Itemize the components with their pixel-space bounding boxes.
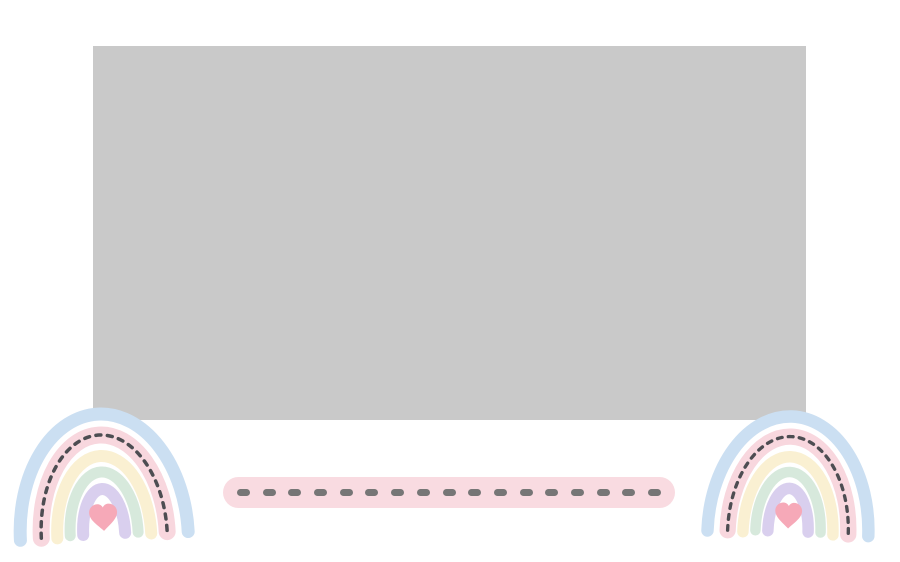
divider-dash xyxy=(391,489,404,496)
divider-dash xyxy=(468,489,481,496)
divider-dash xyxy=(597,489,610,496)
divider-dash xyxy=(340,489,353,496)
divider-dash xyxy=(545,489,558,496)
divider-dash xyxy=(648,489,661,496)
image-placeholder xyxy=(93,46,806,420)
rainbow-illustration-left xyxy=(2,393,200,553)
divider-dash xyxy=(520,489,533,496)
heart-icon xyxy=(775,502,803,529)
rainbow-graphic xyxy=(2,393,200,553)
divider-dash xyxy=(288,489,301,496)
divider-dash xyxy=(314,489,327,496)
divider-dash xyxy=(494,489,507,496)
dashed-divider xyxy=(223,477,675,508)
heart-icon xyxy=(89,503,118,531)
divider-dash xyxy=(443,489,456,496)
divider-dash xyxy=(263,489,276,496)
page-canvas xyxy=(0,0,900,562)
rainbow-graphic xyxy=(697,398,884,548)
divider-dash xyxy=(571,489,584,496)
rainbow-illustration-right xyxy=(697,398,884,548)
divider-dash xyxy=(237,489,250,496)
divider-dash xyxy=(622,489,635,496)
divider-dash xyxy=(365,489,378,496)
divider-dash xyxy=(417,489,430,496)
